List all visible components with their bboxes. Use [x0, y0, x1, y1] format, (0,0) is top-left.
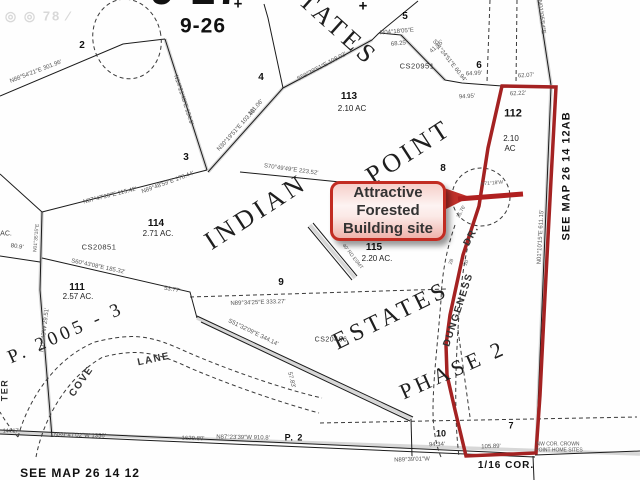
plat-map: ◎ ◎ 78 ∕9-279-26++ESTATESINDIANPOINTESTA… [0, 0, 640, 480]
lot-number-10: 10 [436, 430, 446, 439]
survey-ref-cs20466: CS20466 [315, 337, 348, 344]
bearing-label: N71°18'W [481, 181, 504, 188]
distance-label: 62.07' [518, 73, 534, 80]
lot-114-acreage: 2.71 AC. [143, 230, 174, 238]
plat-name-estates: ESTATES [329, 278, 453, 355]
lot-number-9: 9 [278, 278, 284, 288]
lot-number-4: 4 [258, 73, 264, 83]
distance-label: 101.06' [247, 99, 265, 118]
distance-label: 1629.80' [182, 436, 205, 442]
callout-line-2: Forested [356, 202, 419, 220]
distance-label: 68.25' [391, 40, 408, 47]
road-label-dungeness: DUNGENESS [442, 272, 475, 348]
distance-label: 20 [464, 260, 471, 267]
phase-2-label: PHASE 2 [396, 337, 509, 404]
callout-line-3: Building site [343, 220, 433, 238]
road-label-lane: LANE [137, 352, 172, 369]
distance-label: 53.77' [164, 286, 181, 295]
plat-name-point: POINT [361, 115, 456, 189]
map-labels: ◎ ◎ 78 ∕9-279-26++ESTATESINDIANPOINTESTA… [0, 0, 640, 480]
lot-112-acreage: 2.10 [503, 135, 519, 143]
distance-label: 144.17' [3, 430, 19, 435]
road-label-dr: DR. [462, 224, 481, 248]
distance-label: 64.99' [466, 71, 482, 78]
callout-line-1: Attractive [353, 184, 422, 202]
nw-corner-note-line2: POINT HOME SITES [535, 449, 582, 454]
bearing-label: N01°05'54″E [536, 0, 546, 34]
survey-ref-cs20851: CS20851 [82, 243, 117, 251]
lot-number-3: 3 [183, 153, 189, 163]
distance-label: 94.95' [459, 94, 475, 101]
bearing-label: N87°23'39″W 910.8' [216, 435, 270, 442]
callout-building-site: Attractive Forested Building site [330, 181, 446, 241]
bearing-label: S51°32'09″E 344.14' [227, 318, 279, 347]
see-map-bottom: SEE MAP 26 14 12 [20, 467, 140, 479]
bearing-label: N14°21'40″E 134.9' [172, 74, 194, 125]
lot-number-5: 5 [402, 12, 408, 22]
bearing-label: S59°39'51″E 108.02' [296, 51, 347, 82]
plat-number-9-26: 9-26 [180, 16, 226, 37]
lot-112-acreage-unit: AC [504, 145, 515, 153]
distance-label: 94.34' [429, 442, 445, 449]
bearing-label: S01°24'51″E 60.94' [431, 39, 467, 83]
section-corner-mark: + [234, 0, 243, 12]
plat-name-indian: INDIAN [200, 169, 312, 254]
distance-label: 57.83' [286, 371, 296, 388]
lot-111-acreage: 2.57 AC. [63, 293, 94, 301]
road-label-cove: COVE [68, 365, 96, 399]
partition-2005-3-label: P. 2005 - 3 [5, 299, 127, 367]
lot-number-115: 115 [366, 243, 382, 253]
bearing-label: S60°43'08″E 185.32' [71, 258, 126, 275]
bearing-label: N01°35'15″E [33, 224, 40, 253]
easement-label: 40' RD ESMT [341, 243, 364, 270]
road-label-ter-fragment: TER [1, 379, 10, 402]
distance-label: 62.22' [510, 91, 526, 98]
lot-number-7: 7 [508, 422, 513, 431]
survey-ref-cs20951: CS20951 [400, 62, 435, 70]
section-corner-mark-2: + [359, 0, 368, 14]
page-2-label: P. 2 [285, 434, 304, 443]
lot-115-acreage: 2.20 AC. [362, 255, 393, 263]
bearing-label: N89°34'25″E 333.27' [230, 299, 285, 307]
bearing-label: N04°18'05″E [380, 28, 414, 37]
sixteenth-corner-label: 1/16 COR. [478, 461, 534, 471]
bearing-label: N88°54'21″E 301.96' [9, 59, 63, 84]
bearing-label: N89°39'01″W [394, 456, 430, 463]
lot-number-112: 112 [504, 109, 522, 120]
see-map-right: SEE MAP 26 14 12AB [562, 111, 573, 240]
bearing-label: N89°47'02″W 1356' [54, 433, 106, 440]
bearing-label: N87°47'20″E 115.42' [83, 186, 138, 205]
lot-number-114: 114 [148, 219, 164, 229]
distance-label: 25.76' [457, 205, 468, 219]
lot-number-113: 113 [341, 92, 357, 102]
distance-label: 28 [449, 259, 456, 266]
bearing-label: N01°10'15″E 611.15' [537, 210, 546, 265]
distance-label: 105.89' [481, 444, 501, 451]
lot-number-2: 2 [79, 41, 85, 51]
plat-number-9-27: 9-27 [150, 0, 242, 12]
edge-fragment-acreage: AC. [0, 231, 12, 238]
photo-watermark: ◎ ◎ 78 ∕ [5, 10, 71, 23]
lot-number-8: 8 [440, 164, 446, 174]
distance-label: 80.9' [10, 243, 24, 251]
bearing-label: N89°48'59″E 178.44' [141, 171, 195, 196]
lot-number-6: 6 [476, 61, 482, 71]
lot-113-acreage: 2.10 AC [338, 105, 366, 113]
